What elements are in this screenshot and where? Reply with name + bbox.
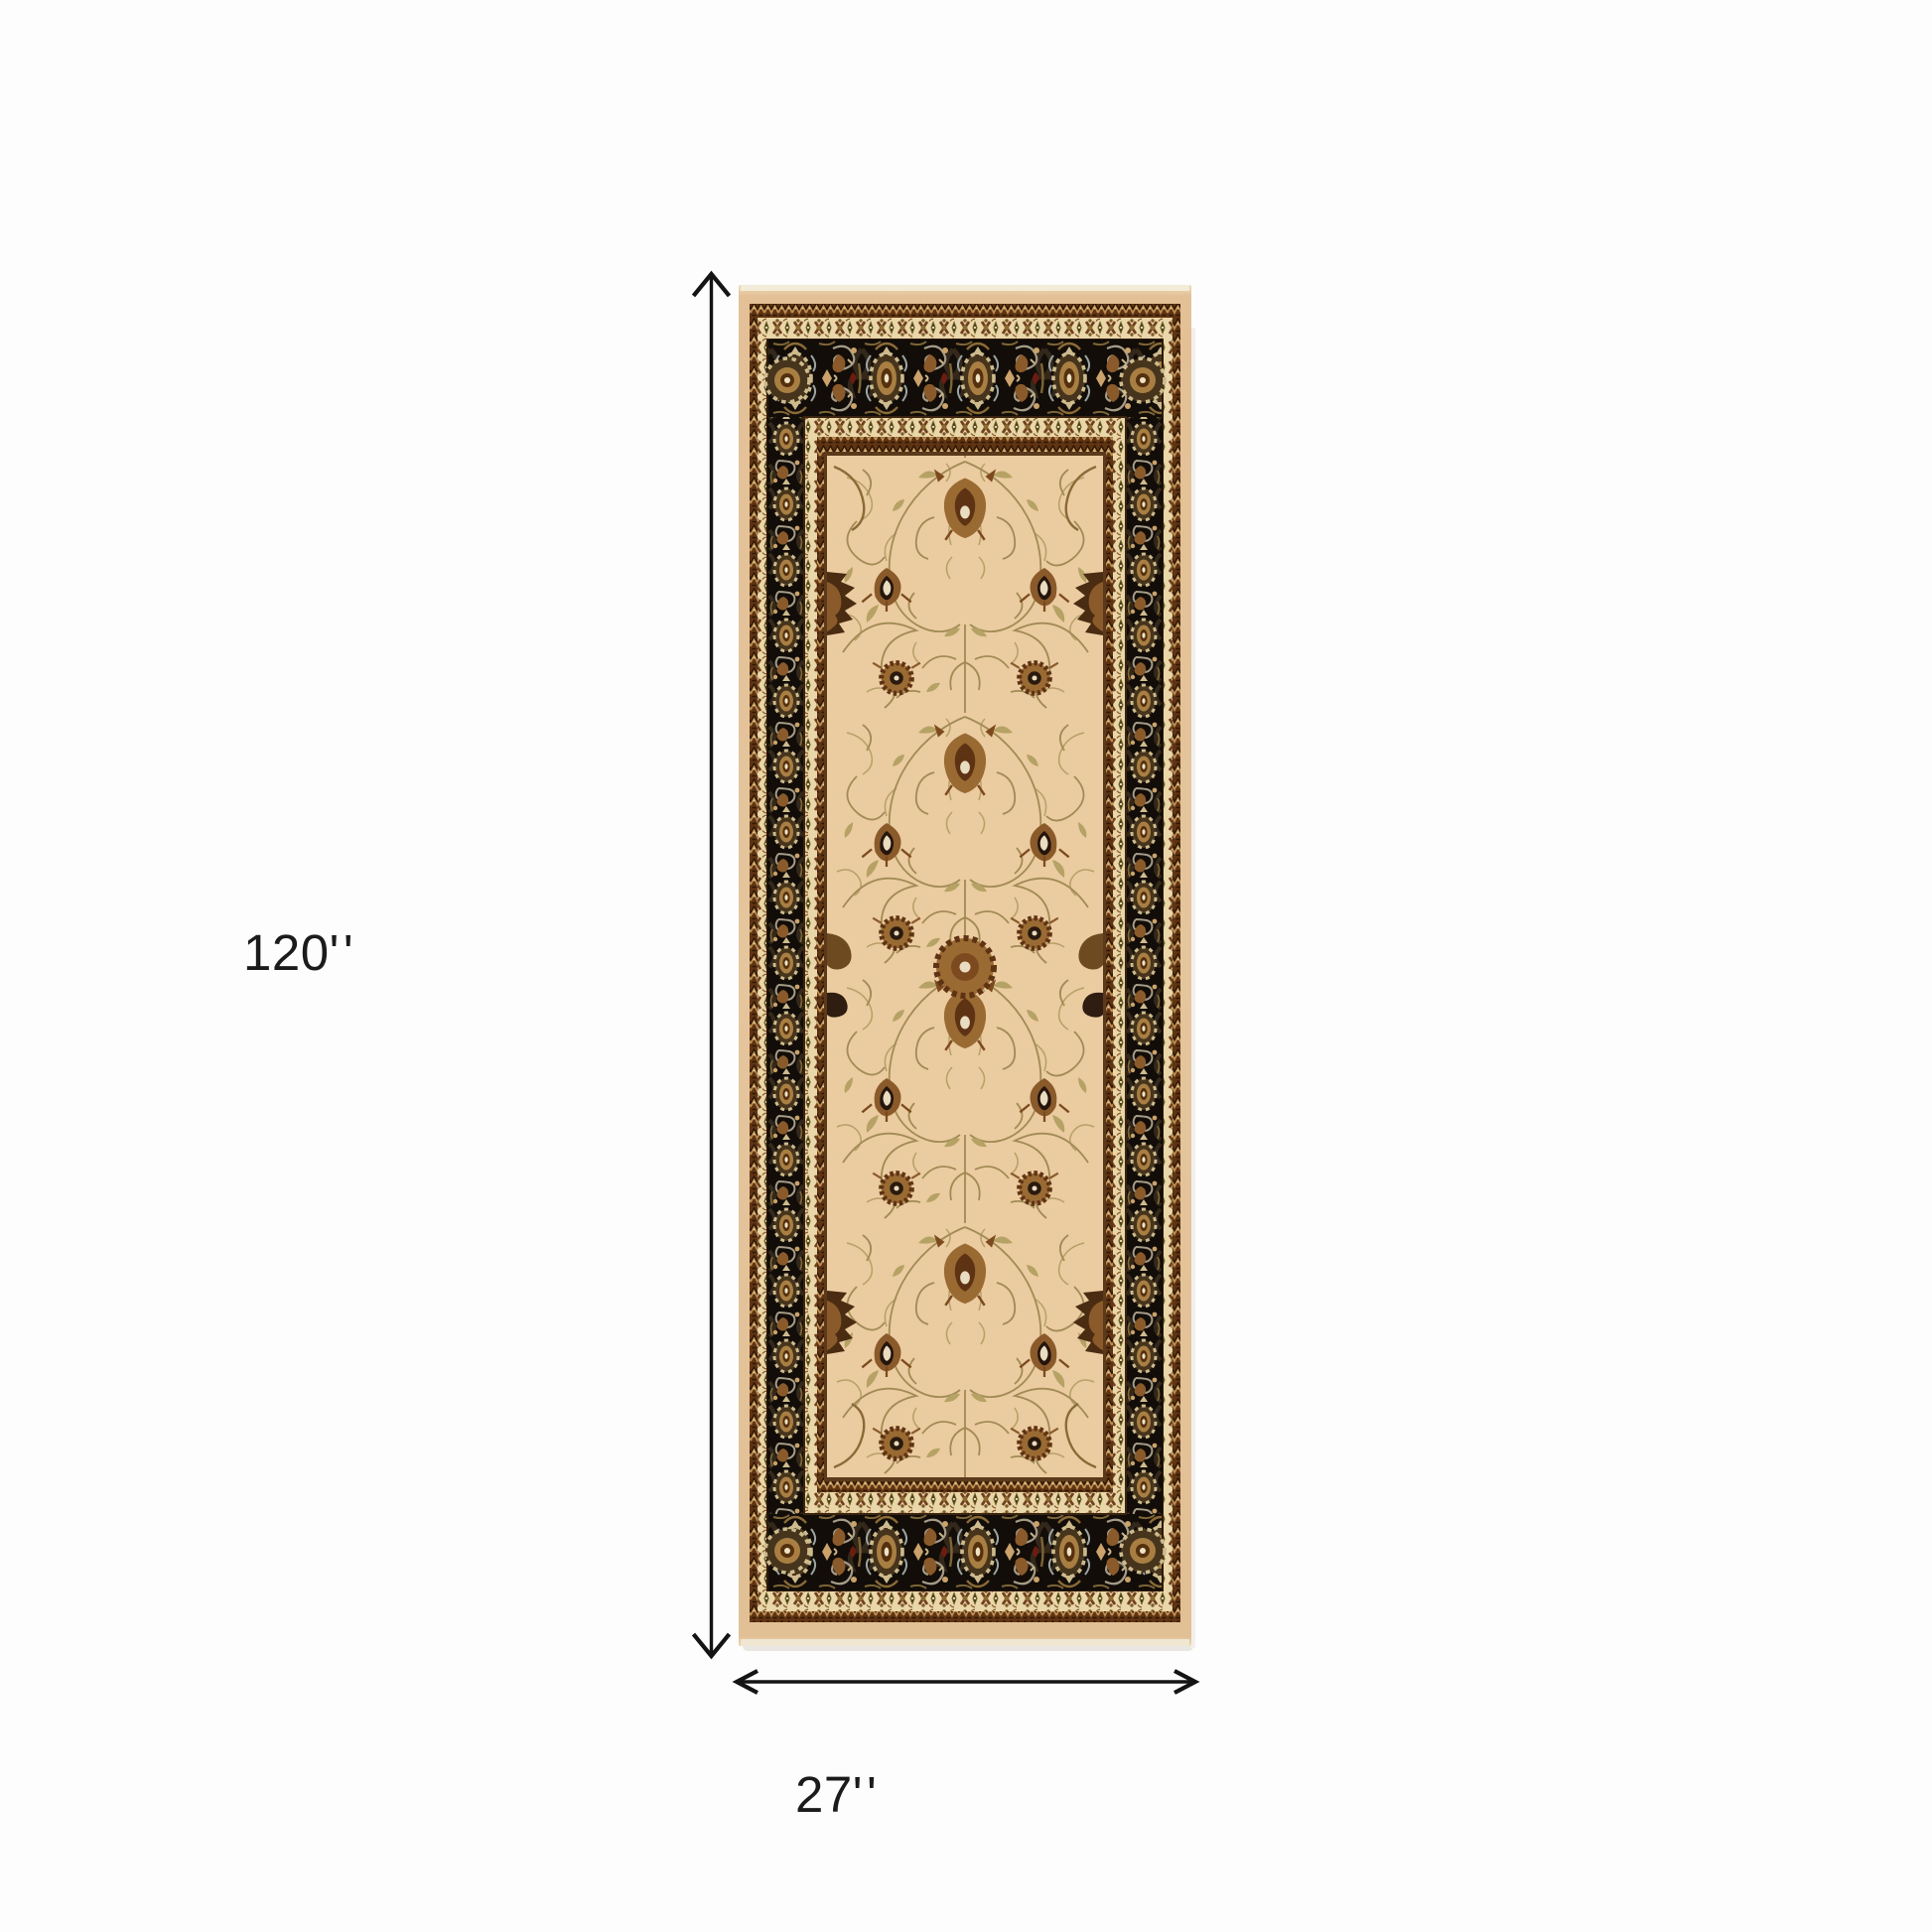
svg-text:120'': 120'' [243, 924, 353, 981]
svg-text:27'': 27'' [795, 1766, 877, 1823]
